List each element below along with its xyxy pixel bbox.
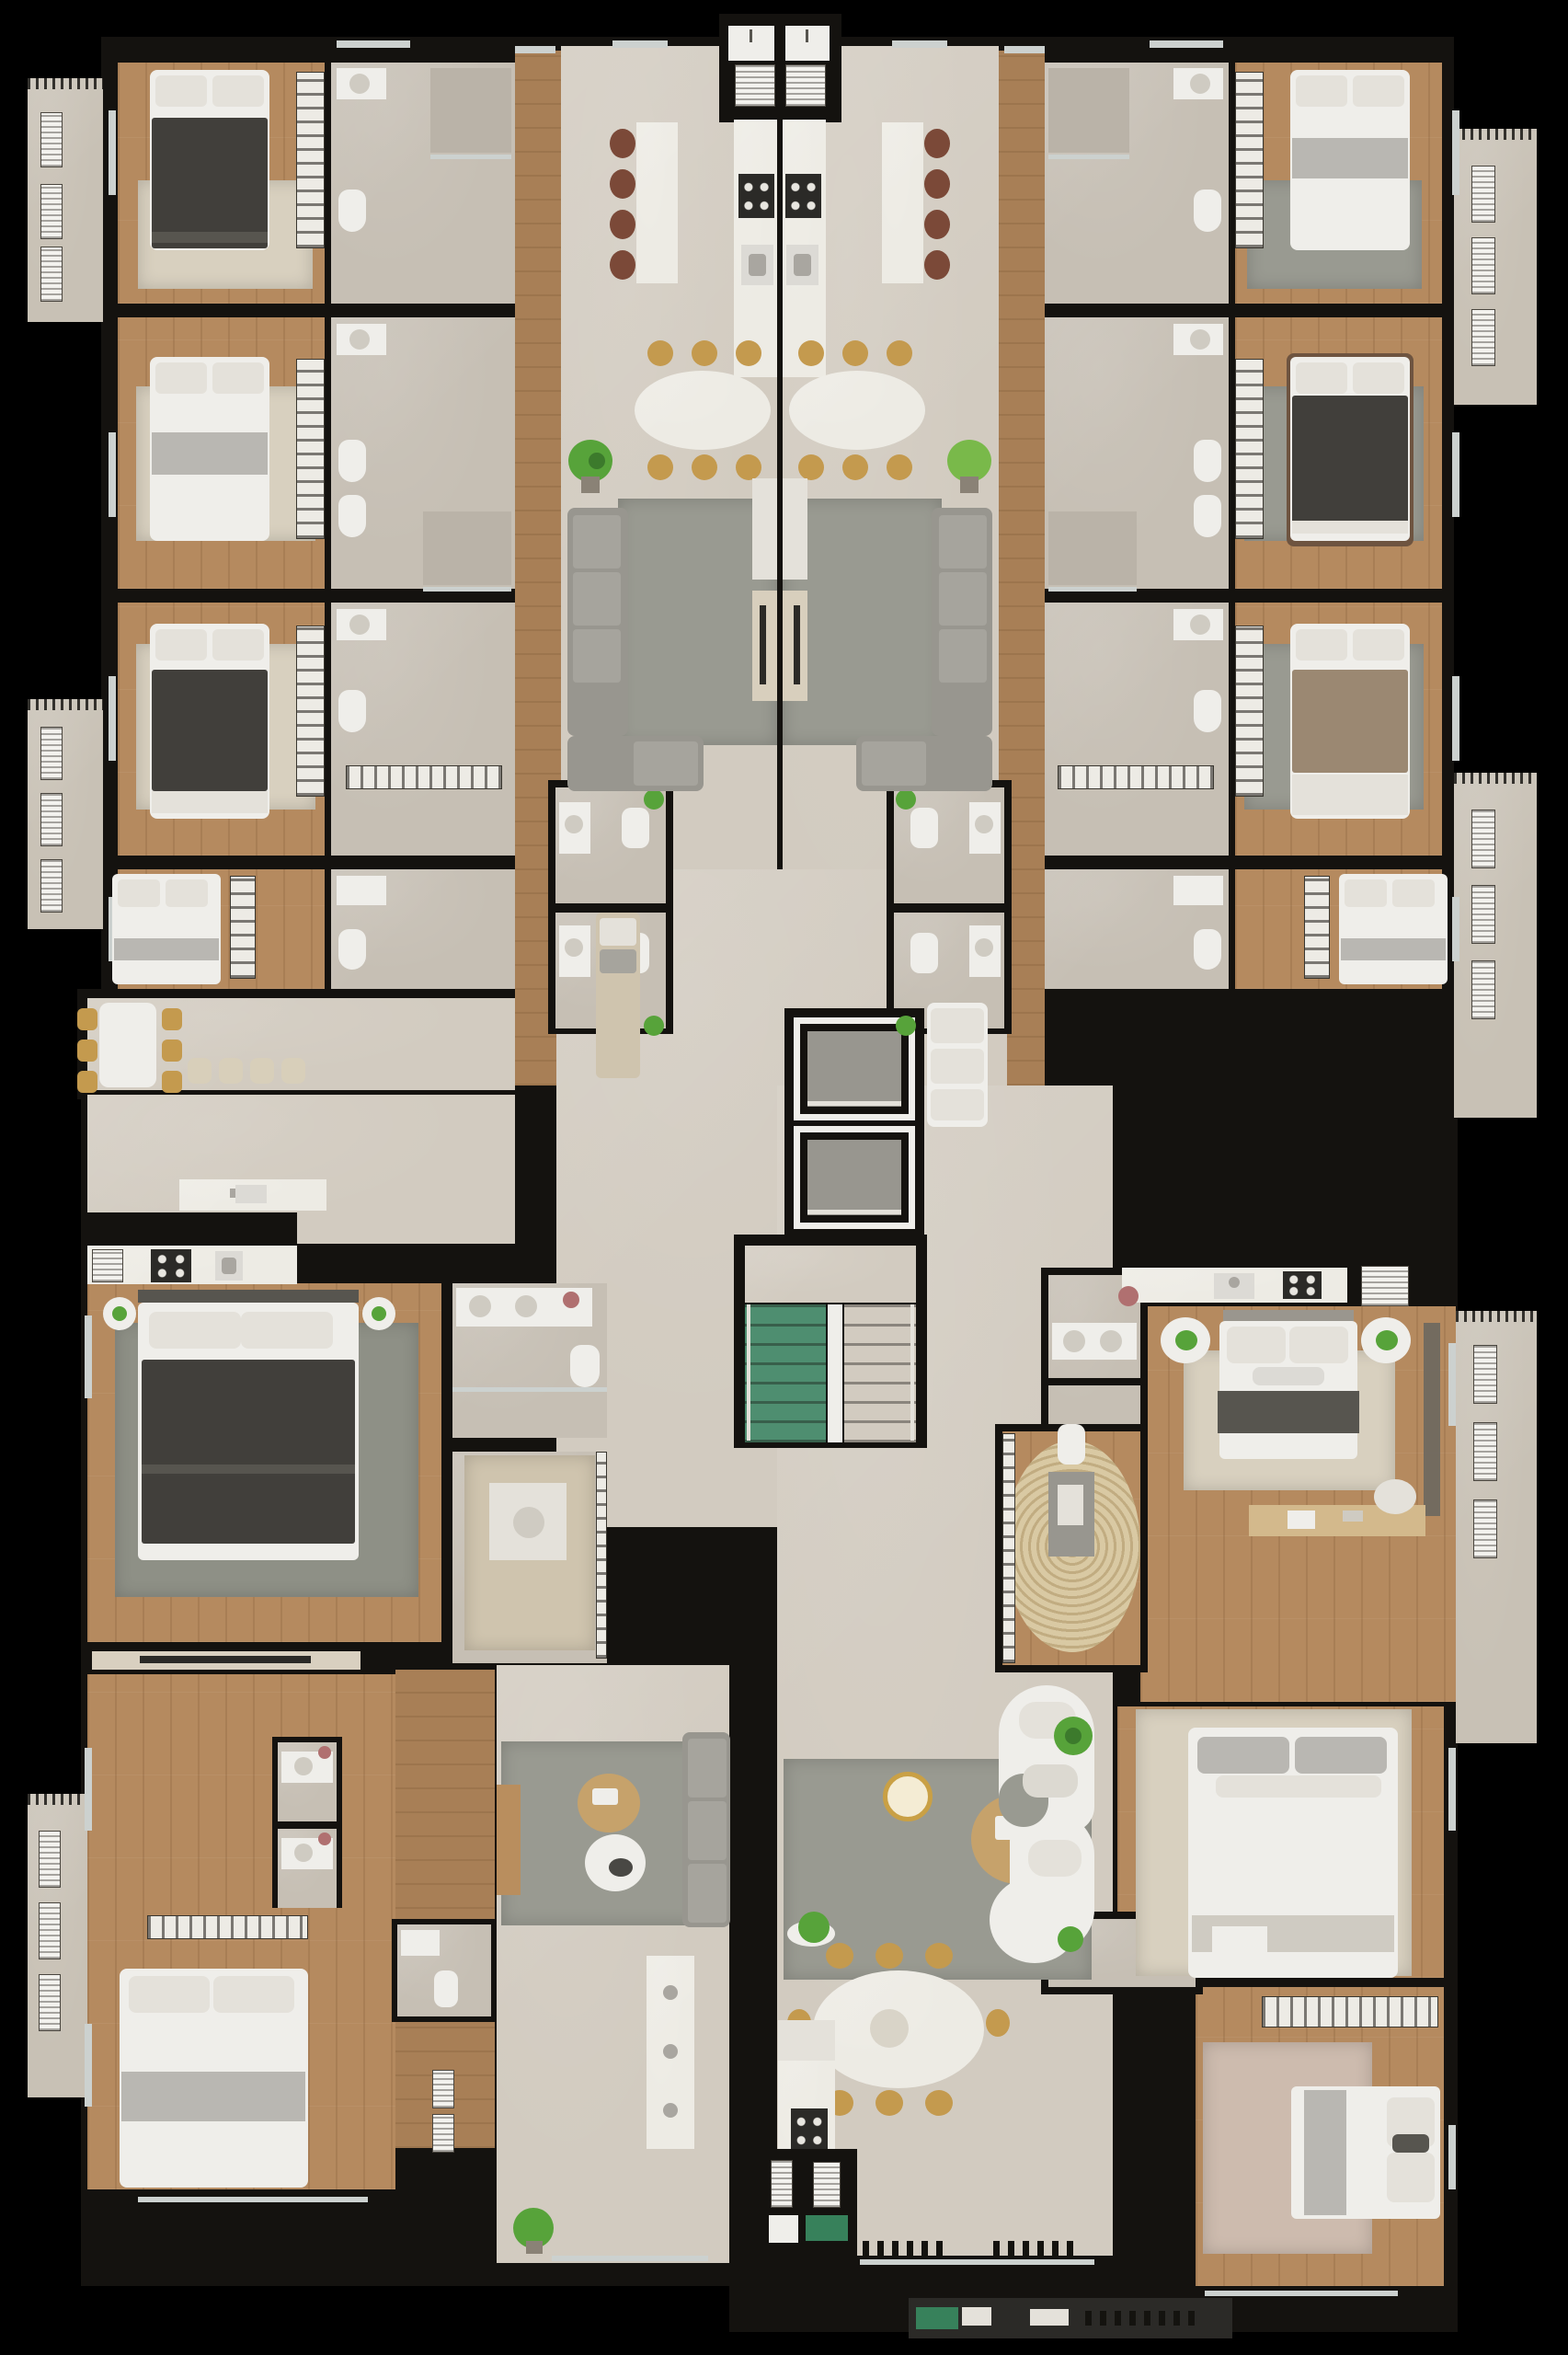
toilet	[1194, 690, 1221, 732]
plant-pot	[581, 477, 600, 493]
chair-gold	[77, 1008, 97, 1030]
rail-marks	[1085, 2311, 1196, 2326]
plant-art	[1058, 1926, 1083, 1952]
cushion	[573, 572, 621, 626]
ac-unit	[1471, 810, 1495, 868]
plant	[372, 1306, 386, 1321]
toilet	[338, 690, 366, 732]
cushion	[600, 918, 636, 946]
basin	[975, 938, 993, 957]
bed-c1-headboard	[138, 1290, 359, 1303]
shelf	[1058, 765, 1214, 789]
balcony-hatch	[28, 699, 103, 710]
balcony-left-1	[28, 78, 103, 322]
closet-rail	[147, 1915, 308, 1939]
chair-gold	[986, 2009, 1010, 2037]
toilet	[570, 1345, 600, 1387]
island-knob	[663, 2044, 678, 2059]
window	[337, 40, 410, 48]
basin	[565, 938, 583, 957]
shower-glass	[452, 1387, 607, 1392]
window	[85, 2024, 92, 2107]
cushion	[600, 949, 636, 973]
ac-unit	[40, 727, 63, 780]
stool	[924, 169, 950, 199]
bed-band	[121, 2072, 305, 2121]
bed-pillow	[1353, 362, 1404, 394]
bed-pillow	[212, 362, 264, 394]
window	[1452, 432, 1459, 517]
tv-panel-b	[783, 478, 807, 580]
chair-gold	[842, 454, 868, 480]
stove	[151, 1249, 191, 1282]
chair-seat	[281, 1058, 305, 1084]
flowers	[318, 1746, 331, 1759]
closet	[1235, 626, 1264, 797]
ac-unit	[39, 1902, 61, 1959]
lamp	[1229, 1277, 1240, 1288]
plant	[644, 1016, 664, 1036]
window	[860, 2259, 1094, 2265]
window	[109, 676, 116, 761]
basin	[349, 74, 370, 94]
vanity	[401, 1930, 440, 1956]
shower	[430, 68, 511, 153]
chair-gold	[77, 1040, 97, 1062]
dining-table-a	[635, 371, 771, 450]
chair-gold	[842, 340, 868, 366]
vanity	[337, 876, 386, 905]
basin	[1100, 1330, 1122, 1352]
louver-unit	[771, 2160, 793, 2208]
ac-unit	[1471, 166, 1495, 223]
bed-band	[1341, 938, 1446, 960]
window	[612, 40, 668, 48]
balcony-right-1	[1454, 129, 1537, 405]
basin	[975, 815, 993, 833]
bed-pillow	[1227, 1327, 1286, 1363]
bed-foot	[152, 791, 268, 813]
ac-unit	[40, 793, 63, 846]
rail-marks	[993, 2241, 1082, 2257]
shaft-door-handle	[750, 29, 752, 42]
bed-band	[114, 938, 219, 960]
ac-unit	[1473, 1499, 1497, 1558]
cushion	[931, 1089, 984, 1120]
kitchen-island-a	[636, 122, 678, 283]
stair-rail	[747, 1304, 750, 1441]
cushion	[688, 1864, 727, 1923]
bed-pillow-small	[1253, 1367, 1324, 1385]
closet	[230, 876, 256, 979]
toilet	[1194, 190, 1221, 232]
island-knob	[663, 1985, 678, 2000]
bed-pillow	[1345, 879, 1387, 907]
window	[1205, 2291, 1398, 2296]
bath-divider	[1048, 1378, 1140, 1385]
basin	[349, 615, 370, 635]
toilet	[338, 929, 366, 970]
shower	[1048, 68, 1129, 153]
utility-cell-green	[806, 2215, 848, 2241]
closet	[596, 1452, 607, 1659]
bed-pillow	[1392, 879, 1435, 907]
louver-unit	[813, 2162, 841, 2208]
vanity	[1212, 1926, 1267, 1952]
closet	[1002, 1433, 1015, 1663]
cushion	[688, 1801, 727, 1860]
window	[1452, 110, 1459, 195]
magazine	[592, 1788, 618, 1805]
elevator-2-car	[807, 1140, 901, 1215]
parapet-box	[1030, 2309, 1069, 2326]
plant	[1376, 1330, 1398, 1350]
ac-unit	[1471, 885, 1495, 944]
curved-sofa-2	[1010, 1812, 1094, 1952]
toilet	[1194, 929, 1221, 970]
plant	[896, 1016, 916, 1036]
bed-band	[152, 432, 268, 475]
kitchen-wall-c	[87, 1212, 297, 1244]
stove	[785, 174, 821, 218]
toilet	[1194, 440, 1221, 482]
basin	[469, 1295, 491, 1317]
basin	[515, 1295, 537, 1317]
bed-foot	[1292, 521, 1408, 534]
washer	[432, 2070, 454, 2108]
parapet-box	[962, 2307, 991, 2326]
bed-pillow	[1353, 75, 1404, 107]
vanity	[1173, 876, 1223, 905]
bed-pillow	[1296, 75, 1347, 107]
bed-pillow	[1216, 1775, 1381, 1798]
door-mark	[1004, 46, 1045, 53]
sink-bowl	[749, 254, 766, 276]
cushion	[1028, 1840, 1082, 1877]
faucet	[230, 1189, 235, 1198]
tv-a	[760, 605, 766, 684]
stool	[924, 250, 950, 280]
bed-pillow	[1387, 2153, 1435, 2202]
door-mark	[515, 46, 555, 53]
closet	[1235, 72, 1264, 248]
cushion	[573, 629, 621, 683]
closet	[1235, 359, 1264, 539]
bed-pillow	[1296, 629, 1347, 661]
cushion	[939, 572, 987, 626]
bed-band	[1292, 138, 1408, 178]
bed-pillow	[213, 1976, 294, 2013]
basin	[1190, 74, 1210, 94]
shower	[1048, 511, 1137, 585]
window	[1448, 1343, 1456, 1426]
sink-bowl	[222, 1258, 236, 1274]
chair-seat	[250, 1058, 274, 1084]
ac-unit	[1473, 1422, 1497, 1481]
bed-duvet-dark	[1292, 396, 1408, 532]
bed-pillow	[155, 75, 207, 107]
plant-leaf	[1065, 1728, 1082, 1744]
cooktop	[791, 2108, 828, 2153]
plant-pot	[960, 477, 979, 493]
basin	[294, 1757, 313, 1775]
chair-gold	[826, 1943, 853, 1969]
bed-fold	[142, 1465, 355, 1474]
ac-unit	[1471, 237, 1495, 294]
chair-gold	[736, 454, 761, 480]
toilet	[622, 808, 649, 848]
ac-unit	[39, 1974, 61, 2031]
bed-throw-v	[1304, 2090, 1346, 2215]
stair-flight-up	[844, 1304, 916, 1442]
closet-rail	[1262, 1996, 1438, 2028]
shower-glass	[430, 155, 511, 159]
stool	[610, 129, 635, 158]
chair-gold	[887, 454, 912, 480]
shower-glass	[1048, 587, 1137, 592]
balcony-left-2	[28, 699, 103, 929]
bed-duvet-tan	[1292, 670, 1408, 773]
window	[1452, 676, 1459, 761]
chair-seat	[219, 1058, 243, 1084]
bed-duvet-dark	[142, 1360, 355, 1544]
stool	[924, 129, 950, 158]
fridge	[92, 1249, 123, 1282]
toilet	[338, 190, 366, 232]
closet	[296, 626, 325, 797]
ac-unit	[39, 1831, 61, 1888]
fridge	[785, 64, 826, 107]
window	[1452, 897, 1459, 961]
cushion	[688, 1739, 727, 1798]
rail-marks	[863, 2241, 951, 2257]
island-knob	[663, 2103, 678, 2118]
ac-unit	[40, 112, 63, 167]
sink	[235, 1185, 267, 1203]
plant	[1175, 1330, 1197, 1350]
cushion	[862, 741, 926, 786]
balcony-hatch	[1456, 1311, 1537, 1322]
window	[109, 110, 116, 195]
plant-pot	[526, 2241, 543, 2254]
floor-plan	[0, 0, 1568, 2355]
stair-landing	[745, 1246, 916, 1303]
basin	[1063, 1330, 1085, 1352]
dining-table-b	[789, 371, 925, 450]
chair-gold	[162, 1040, 182, 1062]
chair-gold	[798, 454, 824, 480]
stove	[738, 174, 774, 218]
chair-seat	[188, 1058, 212, 1084]
bed-duvet-dark	[152, 670, 268, 791]
bed-pillow	[155, 362, 207, 394]
toilet	[1058, 1424, 1085, 1465]
stool	[610, 250, 635, 280]
window	[138, 2197, 368, 2202]
bed-pillow-gray	[1295, 1737, 1387, 1774]
toilet	[434, 1970, 458, 2007]
balcony-hatch	[1454, 129, 1537, 140]
cushion	[939, 515, 987, 569]
parapet-planter-green	[916, 2307, 958, 2329]
walkin-tray	[1058, 1485, 1083, 1525]
ac-unit	[1471, 309, 1495, 366]
balcony-hatch	[1454, 773, 1537, 784]
bidet	[338, 495, 366, 537]
chair-gold	[647, 454, 673, 480]
ac-unit	[1473, 1345, 1497, 1404]
bed-pillow	[149, 1312, 241, 1349]
basin	[565, 815, 583, 833]
bed-pillow	[212, 75, 264, 107]
window	[85, 1315, 92, 1398]
cushion	[573, 515, 621, 569]
stair-rail	[910, 1304, 914, 1441]
mirror	[513, 1507, 544, 1538]
window	[1150, 40, 1223, 48]
plant	[798, 1912, 830, 1943]
flowers	[563, 1292, 579, 1308]
chair-gold	[925, 2090, 953, 2116]
basin	[1190, 329, 1210, 350]
tv-b	[794, 605, 800, 684]
chair-gold	[77, 1071, 97, 1093]
elevator-2-door	[807, 1210, 901, 1214]
bed-pillow	[241, 1312, 333, 1349]
bed-d1-headboard	[1223, 1310, 1354, 1321]
closet	[1304, 876, 1330, 979]
flowers	[318, 1832, 331, 1845]
upper-cabinet-d	[778, 2020, 835, 2061]
chair-gold	[798, 340, 824, 366]
closet	[296, 359, 325, 539]
decor	[609, 1858, 633, 1877]
chair-gold	[647, 340, 673, 366]
ac-unit	[1471, 960, 1495, 1019]
cushion	[634, 741, 698, 786]
tv-panel-a	[752, 478, 777, 580]
shelf	[346, 765, 502, 789]
chair-gold	[925, 1943, 953, 1969]
toilet	[910, 808, 938, 848]
shaft-door-handle	[806, 29, 808, 42]
bed-pillow	[118, 879, 160, 907]
bed-pillow-gray	[1197, 1737, 1289, 1774]
chair-gold	[876, 1943, 903, 1969]
flowers	[1118, 1286, 1139, 1306]
bed-pillow	[1289, 1327, 1348, 1363]
closet	[296, 72, 325, 248]
washer	[432, 2114, 454, 2153]
kitchen-island-b	[882, 122, 923, 283]
balcony-right-2	[1454, 773, 1537, 1118]
stool	[610, 210, 635, 239]
chair-gold	[692, 454, 717, 480]
dining-table-c	[99, 1003, 156, 1087]
sink-bowl	[794, 254, 811, 276]
bidet	[1194, 495, 1221, 537]
shower-glass	[1048, 155, 1129, 159]
bed-pillow	[212, 629, 264, 661]
toilet	[338, 440, 366, 482]
window	[552, 2256, 708, 2261]
bed-pillow	[129, 1976, 210, 2013]
shower	[423, 511, 511, 585]
window	[892, 40, 947, 48]
chair-gold	[692, 340, 717, 366]
plant	[112, 1306, 127, 1321]
cushion	[939, 629, 987, 683]
pendant-lamp	[883, 1772, 933, 1821]
laptop	[1288, 1511, 1315, 1529]
chair-gold	[162, 1008, 182, 1030]
desk-decor	[1343, 1511, 1363, 1522]
bed-pillow-dark	[1392, 2134, 1429, 2153]
media-console-c	[497, 1785, 521, 1895]
window	[85, 1748, 92, 1831]
basin	[1190, 615, 1210, 635]
ac-unit	[40, 859, 63, 913]
fridge	[735, 64, 775, 107]
plant-leaf	[589, 453, 605, 469]
cushion	[931, 1049, 984, 1084]
chair-gold	[736, 340, 761, 366]
plant	[896, 789, 916, 810]
stair-flight-down	[745, 1304, 826, 1442]
bed-duvet-dark	[152, 118, 268, 248]
cushion	[931, 1008, 984, 1043]
desk-chair	[1374, 1479, 1416, 1514]
shower-glass	[423, 587, 511, 592]
toilet	[910, 933, 938, 973]
cushion	[1023, 1764, 1078, 1798]
basin	[294, 1844, 313, 1862]
induction-cooktop	[1283, 1271, 1322, 1299]
window	[1448, 2125, 1456, 2189]
stair-stringer	[828, 1304, 842, 1442]
tv-c1	[140, 1656, 311, 1663]
stool	[924, 210, 950, 239]
window	[109, 432, 116, 517]
bed-pillow	[155, 629, 207, 661]
ac-unit	[40, 184, 63, 239]
window	[1448, 1748, 1456, 1831]
stool	[610, 169, 635, 199]
chair-gold	[887, 340, 912, 366]
bed-pillow	[1296, 362, 1347, 394]
bed-foot	[1292, 775, 1408, 815]
louver-unit	[1361, 1266, 1409, 1306]
balcony-hatch	[28, 78, 103, 89]
chair-gold	[876, 2090, 903, 2116]
elevator-1-car	[807, 1031, 901, 1107]
chair-gold	[162, 1071, 182, 1093]
bed-throw-dark	[1218, 1391, 1359, 1433]
ac-unit	[40, 247, 63, 302]
bed-fold	[152, 232, 268, 243]
utility-cell	[769, 2215, 798, 2243]
bed-pillow	[166, 879, 208, 907]
elevator-1-door	[807, 1101, 901, 1106]
bed-pillow	[1353, 629, 1404, 661]
curtain	[1424, 1323, 1440, 1516]
plant	[644, 789, 664, 810]
centerpiece	[870, 2009, 909, 2048]
basin	[349, 329, 370, 350]
